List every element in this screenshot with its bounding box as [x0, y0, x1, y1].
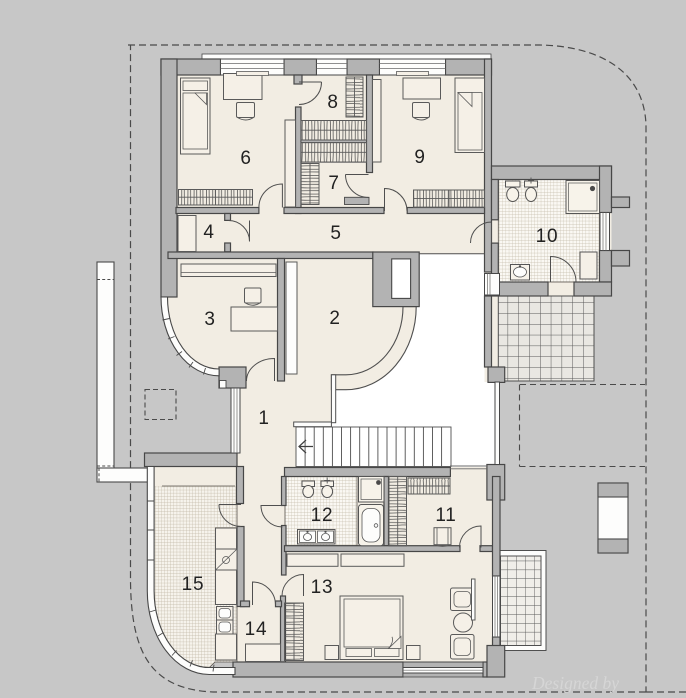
svg-text:7: 7 — [328, 173, 339, 194]
svg-text:5: 5 — [330, 223, 341, 244]
svg-text:15: 15 — [182, 574, 205, 595]
svg-text:14: 14 — [245, 619, 268, 640]
svg-text:2: 2 — [329, 308, 340, 329]
svg-text:11: 11 — [435, 505, 456, 526]
svg-text:3: 3 — [204, 309, 215, 330]
svg-text:9: 9 — [414, 147, 425, 168]
svg-text:13: 13 — [311, 577, 334, 598]
svg-text:8: 8 — [327, 92, 338, 113]
svg-text:6: 6 — [240, 148, 251, 169]
svg-text:4: 4 — [203, 222, 214, 243]
svg-text:10: 10 — [536, 226, 559, 247]
svg-text:12: 12 — [311, 505, 334, 526]
svg-text:1: 1 — [258, 408, 269, 429]
svg-text:Designed by: Designed by — [531, 673, 619, 693]
